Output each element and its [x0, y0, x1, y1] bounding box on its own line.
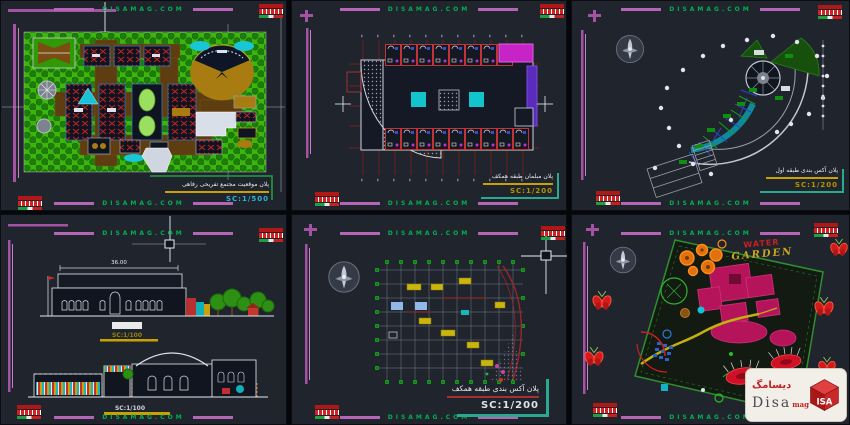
- compass-icon: [329, 262, 359, 292]
- logo-persian-name: دیسامگ: [752, 380, 791, 391]
- structure-overlays: [389, 266, 523, 382]
- drawing-title: پلان موقعیت مجتمع تفریحی رفاهی: [165, 181, 269, 189]
- cube-letters: ISA: [817, 397, 833, 407]
- logo-latin-name: Disamag: [752, 392, 809, 411]
- north-arrow-icon: [616, 35, 643, 62]
- crosshair: [521, 236, 567, 294]
- title-block-first-floor: پلان آکس بندی طبقه اول SC:1/200: [766, 167, 838, 189]
- sheet-border-magenta: [581, 10, 601, 180]
- sheet-border-magenta: [304, 224, 317, 384]
- drawing-sheet-grid: DISAMAG.COM DISAMAG.COM پلان موقعیت مجتم…: [0, 0, 850, 425]
- disamag-mini-logo: [814, 223, 838, 237]
- label-box: [112, 322, 142, 329]
- drawing-scale: SC:1/200: [447, 400, 539, 411]
- panel-furniture-plan: DISAMAG.COM DISAMAG.COM پلان مبلمان طبقه…: [291, 0, 567, 211]
- disamag-mini-logo: [17, 405, 41, 419]
- disamag-mini-logo: [540, 4, 564, 18]
- disamag-mini-logo: [596, 191, 620, 205]
- mosaic-wall: [36, 382, 100, 395]
- disamag-mini-logo: [259, 4, 283, 18]
- site-plan-drawing: [0, 0, 287, 211]
- sheet-border-magenta: [300, 10, 313, 158]
- disamag-mini-logo: [18, 196, 42, 210]
- disamag-mini-logo: [541, 226, 565, 240]
- trees-row: [210, 289, 274, 316]
- disamag-mini-logo: [315, 192, 339, 206]
- highlight-zone-magenta: [499, 44, 533, 62]
- disamag-logo: دیسامگ Disamag ISA: [745, 368, 847, 422]
- elevation-scale: SC:1/100: [112, 332, 142, 339]
- title-underline: [483, 183, 553, 186]
- title-block-site-plan: پلان موقعیت مجتمع تفریحی رفاهی SC:1/500: [165, 181, 269, 203]
- panel-garden-plan: DISAMAG.COM DISAMAG.COM WATER GARDEN دیس…: [571, 214, 850, 425]
- title-underline: [165, 191, 269, 194]
- disamag-mini-logo: [593, 403, 617, 417]
- scale-underline: [100, 339, 158, 342]
- north-arrow-icon: [610, 247, 636, 273]
- isa-cube-icon: ISA: [809, 374, 840, 416]
- green-partitions: [703, 96, 755, 148]
- disamag-mini-logo: [315, 405, 339, 419]
- blue-partitions: [689, 90, 757, 166]
- tennis-court: [33, 38, 75, 68]
- disamag-mini-logo: [259, 228, 283, 242]
- scale-underline: [104, 412, 170, 415]
- elevation-scale: SC:1/100: [115, 405, 145, 412]
- elevations-drawing: 36.00: [0, 214, 287, 425]
- yellow-beams: [407, 278, 505, 366]
- drawing-scale: SC:1/200: [483, 187, 553, 195]
- title-block-axes-plan: پلان آکس بندی طبقه همکف SC:1/200: [447, 384, 539, 411]
- sheet-border-magenta: [583, 224, 599, 394]
- drawing-scale: SC:1/500: [165, 195, 269, 203]
- panel-axes-plan: DISAMAG.COM DISAMAG.COM پلان آکس بندی طب…: [291, 214, 567, 425]
- elevation-front: 36.00: [40, 260, 274, 342]
- panel-first-floor-plan: DISAMAG.COM DISAMAG.COM پلان آکس بندی طب…: [571, 0, 850, 211]
- dim-column-right: [822, 40, 825, 130]
- panel-elevations: 36.00: [0, 214, 287, 425]
- elevation-section: SC:1/100: [28, 353, 268, 415]
- flag: [48, 276, 55, 280]
- title-block-furniture-plan: پلان مبلمان طبقه همکف SC:1/200: [483, 173, 553, 195]
- panel-site-plan: DISAMAG.COM DISAMAG.COM پلان موقعیت مجتم…: [0, 0, 287, 211]
- width-dimension: 36.00: [111, 260, 127, 266]
- title-underline: [447, 396, 539, 399]
- drawing-scale: SC:1/200: [766, 181, 838, 189]
- crosshair: [132, 216, 206, 262]
- drawing-title: پلان آکس بندی طبقه همکف: [447, 384, 539, 393]
- landscape-area: [24, 32, 266, 172]
- title-underline: [766, 177, 838, 180]
- buildings-top-row: [84, 46, 170, 66]
- disamag-mini-logo: [818, 5, 842, 19]
- drawing-title: پلان مبلمان طبقه همکف: [483, 173, 553, 181]
- drawing-title: پلان آکس بندی طبقه اول: [766, 167, 838, 175]
